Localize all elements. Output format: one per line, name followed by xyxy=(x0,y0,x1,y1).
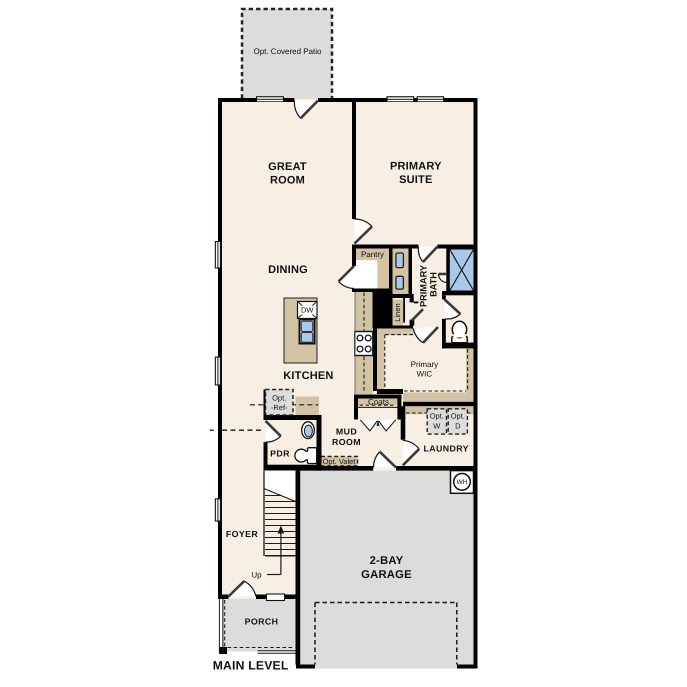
svg-text:Pantry: Pantry xyxy=(361,250,384,259)
svg-text:Opt. Covered Patio: Opt. Covered Patio xyxy=(253,47,322,56)
svg-text:Linen: Linen xyxy=(393,303,402,321)
svg-text:GREAT: GREAT xyxy=(268,161,307,173)
svg-text:ROOM: ROOM xyxy=(332,437,361,447)
svg-text:BATH: BATH xyxy=(428,272,438,297)
svg-text:MAIN LEVEL: MAIN LEVEL xyxy=(213,659,289,673)
svg-text:KITCHEN: KITCHEN xyxy=(283,370,333,382)
svg-text:SUITE: SUITE xyxy=(399,174,432,186)
svg-text:DW: DW xyxy=(301,306,314,315)
svg-text:FOYER: FOYER xyxy=(226,529,259,539)
svg-text:MUD: MUD xyxy=(336,426,357,436)
svg-text:ROOM: ROOM xyxy=(270,175,305,187)
svg-text:DINING: DINING xyxy=(268,264,308,276)
svg-text:D: D xyxy=(455,421,461,430)
svg-text:PRIMARY: PRIMARY xyxy=(418,265,428,307)
svg-text:-Ref-: -Ref- xyxy=(271,403,288,412)
svg-text:Primary: Primary xyxy=(411,360,439,369)
svg-text:PORCH: PORCH xyxy=(245,616,279,626)
svg-text:2-BAY: 2-BAY xyxy=(370,555,404,567)
svg-text:W: W xyxy=(433,421,441,430)
svg-text:Coats: Coats xyxy=(368,397,389,406)
svg-text:PDR: PDR xyxy=(270,448,290,458)
svg-text:WH: WH xyxy=(457,479,468,486)
svg-text:LAUNDRY: LAUNDRY xyxy=(423,444,468,454)
svg-text:GARAGE: GARAGE xyxy=(361,569,412,581)
svg-text:PRIMARY: PRIMARY xyxy=(390,160,442,172)
svg-text:Opt.: Opt. xyxy=(430,411,444,420)
svg-text:Up: Up xyxy=(251,571,262,580)
svg-text:WIC: WIC xyxy=(417,369,433,378)
svg-text:Opt.: Opt. xyxy=(451,411,465,420)
svg-text:Opt.: Opt. xyxy=(272,393,286,402)
svg-text:Opt. Valet: Opt. Valet xyxy=(323,457,357,466)
